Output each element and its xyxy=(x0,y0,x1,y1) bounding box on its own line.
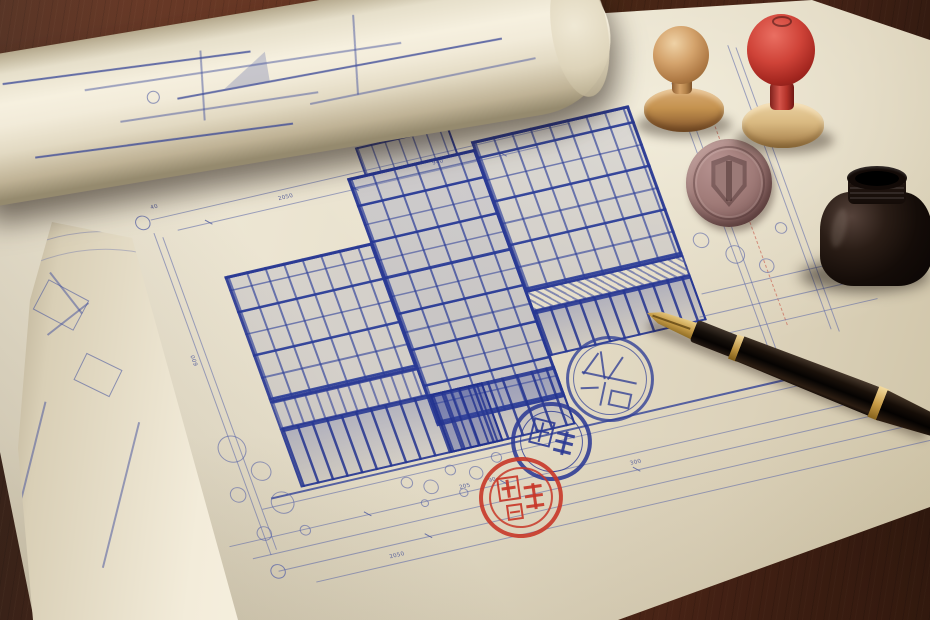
tube-drawing-line xyxy=(310,57,536,104)
wax-seal-monogram xyxy=(726,161,732,201)
tube-drawing-line xyxy=(352,15,359,95)
tube-circle-marker xyxy=(146,90,161,105)
tube-drawing-line xyxy=(35,123,293,159)
tree-symbol xyxy=(773,221,789,235)
wooden-stamp-handle xyxy=(653,26,709,84)
red-stamp-neck xyxy=(770,82,794,110)
tree-symbol xyxy=(690,231,711,250)
shrub-symbol xyxy=(421,478,441,496)
dimension-label: 40 xyxy=(150,204,159,211)
tree-symbol xyxy=(757,257,777,275)
wooden-stamp-base xyxy=(644,88,724,132)
dimension-label: 2050 xyxy=(389,551,406,560)
datum-circle-marker xyxy=(133,214,153,232)
tube-drawing-line xyxy=(3,50,251,85)
dimension-label: 2050 xyxy=(277,193,294,202)
dimension-label: 300 xyxy=(629,459,642,467)
scene: 2050 940 40 600 xyxy=(0,0,930,620)
red-stamp-spiral-mark xyxy=(772,16,792,27)
red-seal-glyph xyxy=(496,475,521,502)
tree-symbol xyxy=(298,524,313,537)
shrub-symbol xyxy=(399,476,415,490)
datum-circle-marker xyxy=(268,563,288,581)
red-seal-glyph xyxy=(523,482,547,513)
red-seal-glyph xyxy=(506,503,524,521)
ink-bottle-opening xyxy=(855,171,899,186)
